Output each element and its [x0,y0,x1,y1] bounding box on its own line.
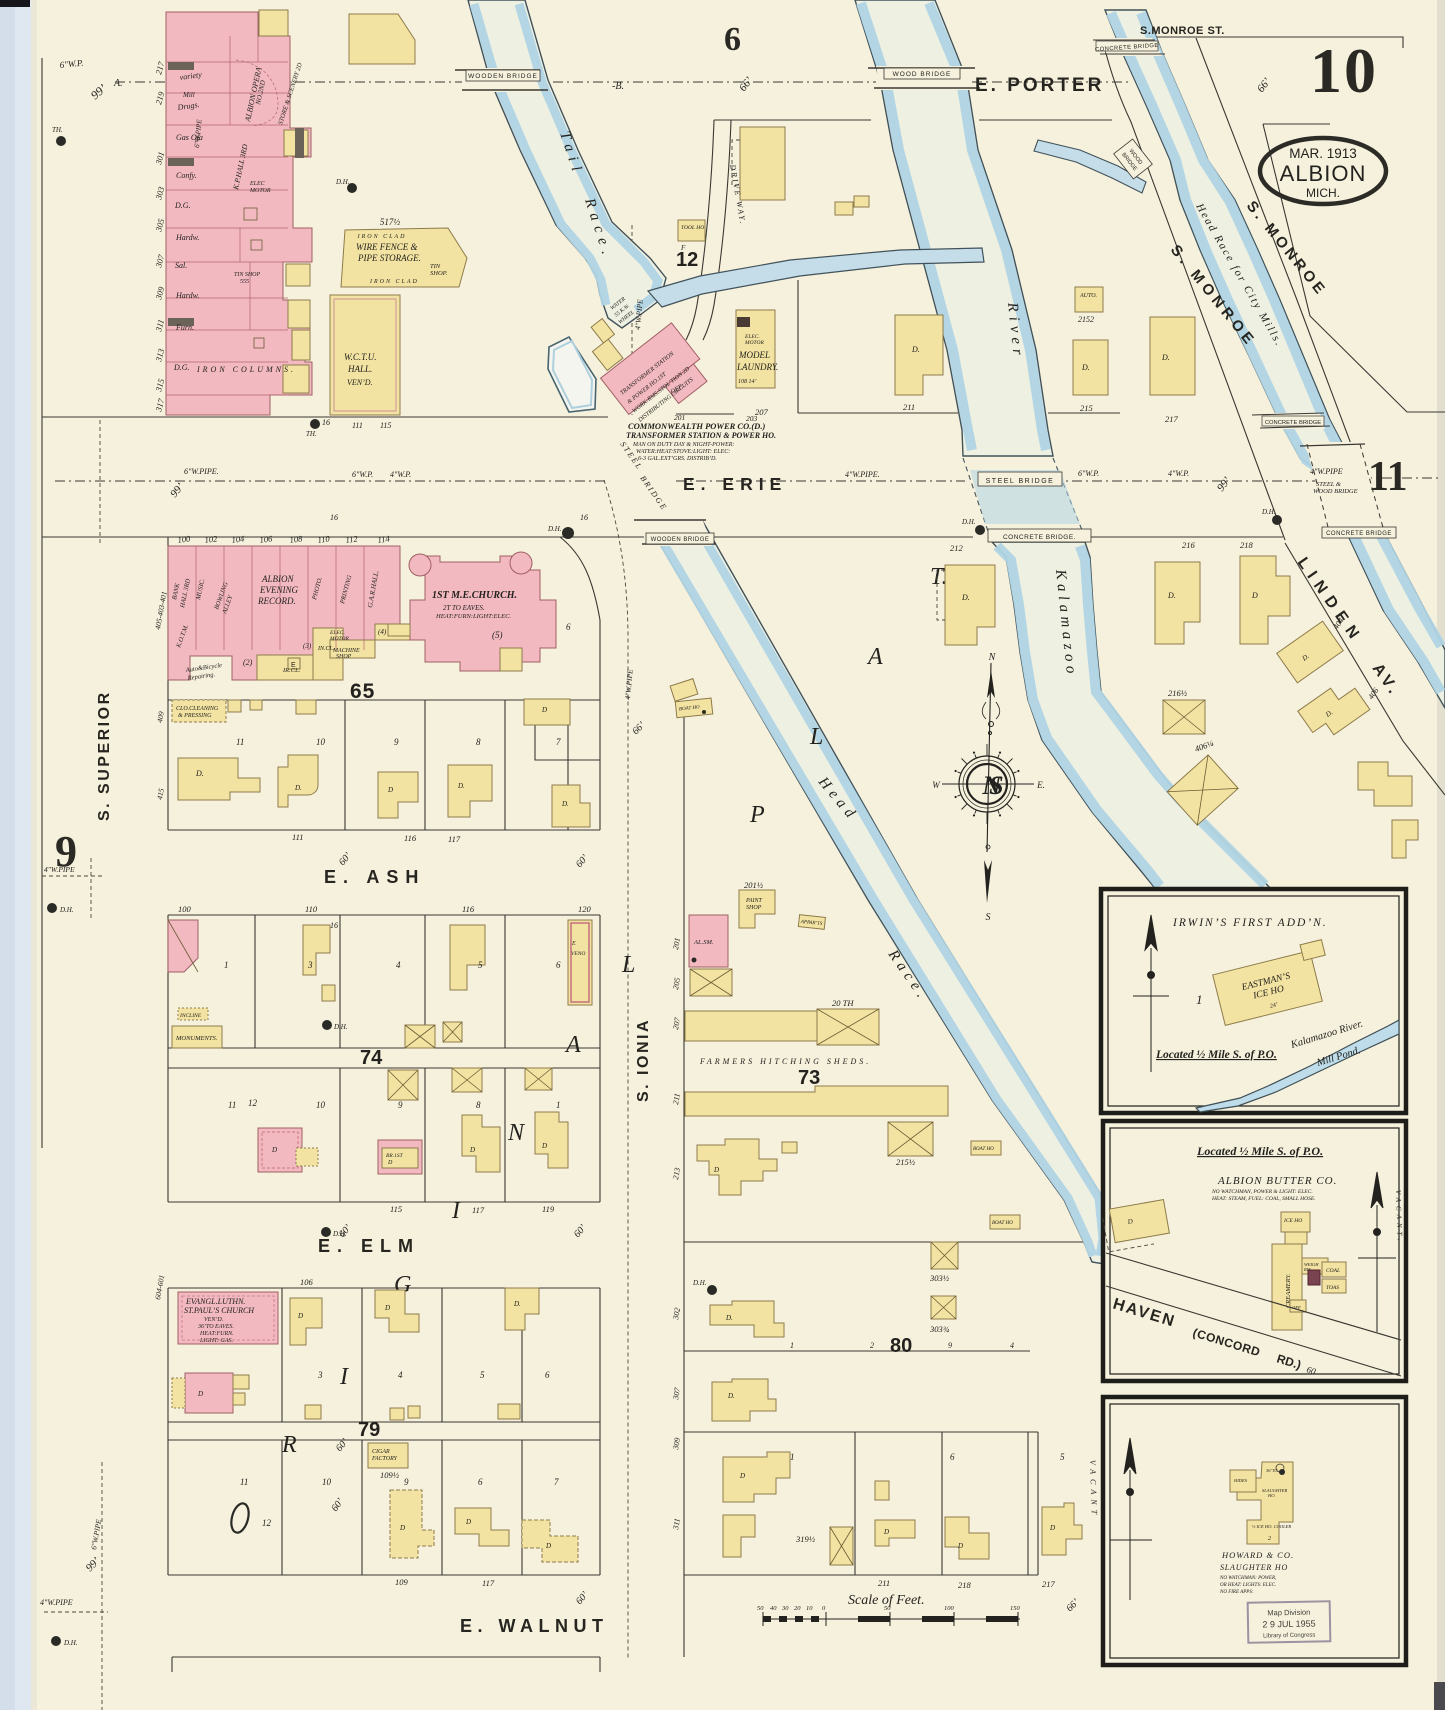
svg-text:D.H.: D.H. [692,1279,707,1287]
svg-text:11: 11 [1368,454,1408,500]
svg-text:106: 106 [300,1277,314,1287]
svg-text:R: R [281,1432,297,1458]
svg-text:5: 5 [478,960,483,970]
svg-text:Map Division: Map Division [1267,1608,1310,1618]
svg-text:3: 3 [307,960,313,970]
svg-text:207: 207 [755,407,769,417]
svg-text:D: D [713,1166,719,1174]
svg-text:D.: D. [1167,591,1176,600]
svg-text:50: 50 [757,1605,764,1612]
svg-text:4"W.PIPE: 4"W.PIPE [1310,467,1343,476]
svg-text:HIDES: HIDES [1233,1478,1248,1483]
svg-text:BOAT HO: BOAT HO [992,1221,1013,1226]
svg-text:5: 5 [480,1370,485,1380]
svg-text:NO FIRE APPS:: NO FIRE APPS: [1219,1590,1254,1595]
svg-text:(5): (5) [492,630,503,640]
svg-text:11: 11 [236,737,244,747]
svg-text:Located ½ Mile S. of P.O.: Located ½ Mile S. of P.O. [1196,1144,1323,1158]
svg-text:IRON CLAD: IRON CLAD [357,234,407,240]
svg-text:ELEC: ELEC [249,181,266,187]
svg-text:65: 65 [350,680,375,703]
svg-text:2152: 2152 [1078,315,1094,324]
svg-text:TOOL HO: TOOL HO [681,225,704,231]
svg-text:10: 10 [806,1605,813,1612]
svg-text:PAINT: PAINT [745,898,763,904]
svg-text:A.: A. [113,78,123,89]
svg-text:D.: D. [457,782,465,790]
svg-text:D.H.: D.H. [1261,508,1276,516]
svg-text:½ ICE HO. COOLER: ½ ICE HO. COOLER [1252,1524,1291,1529]
svg-text:Hardw.: Hardw. [175,291,199,300]
svg-text:D.H.: D.H. [335,178,350,186]
svg-text:D.H.: D.H. [332,1230,347,1238]
svg-text:8: 8 [476,1100,481,1110]
svg-text:MOTOR: MOTOR [329,636,349,642]
svg-text:-B.: -B. [612,81,624,92]
svg-text:6: 6 [556,960,561,970]
svg-text:S.MONROE ST.: S.MONROE ST. [1140,25,1225,37]
svg-text:VEN’D.: VEN’D. [204,1317,223,1323]
svg-text:Furn.: Furn. [175,323,194,332]
svg-text:115: 115 [390,1204,402,1214]
svg-text:1: 1 [224,960,229,970]
svg-text:E.: E. [1036,780,1045,790]
svg-text:12: 12 [248,1098,258,1108]
svg-text:HEAT: STEAM, FUEL: COAL, SMALL: HEAT: STEAM, FUEL: COAL, SMALL HOSE. [1211,1196,1316,1202]
svg-text:218: 218 [958,1580,972,1590]
svg-text:80: 80 [890,1335,912,1357]
svg-text:11: 11 [228,1100,236,1110]
svg-text:VEN’D.: VEN’D. [347,378,373,387]
svg-text:D.: D. [195,769,204,778]
svg-text:SLAUGHTER HO: SLAUGHTER HO [1220,1563,1288,1572]
svg-text:HEAT:FURN:LIGHT:ELEC.: HEAT:FURN:LIGHT:ELEC. [435,613,511,620]
svg-text:110: 110 [317,533,331,545]
svg-text:104: 104 [231,533,246,545]
svg-text:7: 7 [556,737,561,747]
svg-text:D: D [541,1142,547,1150]
svg-text:20: 20 [794,1605,801,1612]
svg-text:D: D [469,1146,475,1154]
svg-text:MODEL: MODEL [738,350,770,360]
svg-text:NO WATCHMAN, POWER & LIGHT: EL: NO WATCHMAN, POWER & LIGHT: ELEC. [1211,1189,1313,1195]
svg-text:217: 217 [1165,414,1179,424]
svg-text:117: 117 [472,1205,485,1215]
svg-text:D: D [883,1528,889,1536]
svg-text:517½: 517½ [380,217,401,227]
svg-text:COAL: COAL [1326,1268,1340,1274]
svg-text:6: 6 [566,622,571,632]
svg-text:MAR. 1913: MAR. 1913 [1289,146,1357,161]
svg-text:6: 6 [545,1370,550,1380]
svg-text:D.H.: D.H. [333,1023,348,1031]
svg-text:LIGHT: GAS.: LIGHT: GAS. [199,1338,233,1344]
svg-text:N: N [988,652,997,663]
svg-text:WOODEN BRIDGE: WOODEN BRIDGE [651,537,710,543]
svg-text:1ST M.E.CHURCH.: 1ST M.E.CHURCH. [432,590,517,601]
svg-text:4: 4 [1010,1341,1014,1350]
svg-text:9: 9 [404,1477,409,1487]
svg-text:CONCRETE BRIDGE: CONCRETE BRIDGE [1265,420,1321,426]
svg-text:L: L [621,952,635,978]
svg-text:OR HEAT: LIGHTS: ELEC.: OR HEAT: LIGHTS: ELEC. [1220,1583,1276,1588]
svg-text:E. WALNUT: E. WALNUT [460,1616,609,1636]
svg-text:ICE HO: ICE HO [1283,1218,1302,1224]
svg-text:D.: D. [561,800,569,808]
svg-text:MAN ON DUTY DAY & NIGHT-POWER:: MAN ON DUTY DAY & NIGHT-POWER: [632,442,734,448]
svg-text:12: 12 [262,1518,272,1528]
svg-text:ST.PAUL’S CHURCH: ST.PAUL’S CHURCH [184,1306,255,1315]
svg-text:Mill: Mill [182,91,195,99]
svg-text:211: 211 [878,1578,890,1588]
svg-text:D.: D. [294,784,302,792]
svg-text:VENO: VENO [571,951,585,957]
svg-text:4"W.P.: 4"W.P. [1168,469,1189,478]
svg-text:D: D [384,1304,390,1312]
svg-text:L: L [809,724,823,750]
svg-text:SHOP: SHOP [746,905,762,911]
svg-text:D: D [957,1542,963,1550]
svg-text:6"W.PIPE.: 6"W.PIPE. [184,467,219,476]
svg-text:S. SUPERIOR: S. SUPERIOR [96,690,113,821]
svg-text:216½: 216½ [1168,688,1188,698]
svg-text:HALL.: HALL. [347,364,372,374]
svg-text:6: 6 [950,1452,955,1462]
svg-text:D.H.: D.H. [63,1639,78,1647]
svg-text:SHOP: SHOP [336,654,352,660]
svg-text:D: D [387,786,393,794]
svg-text:1: 1 [790,1341,794,1350]
svg-text:114: 114 [377,533,391,545]
svg-text:D: D [1049,1524,1055,1532]
svg-text:12: 12 [676,249,698,271]
svg-text:2: 2 [870,1341,874,1350]
svg-text:Located ½ Mile S. of P.O.: Located ½ Mile S. of P.O. [1155,1049,1277,1061]
svg-text:9: 9 [948,1341,952,1350]
svg-text:(4): (4) [378,628,387,636]
svg-text:S. IONIA: S. IONIA [635,1018,652,1102]
svg-text:116: 116 [462,904,475,914]
svg-text:ALBION: ALBION [261,574,294,584]
svg-text:TIN: TIN [430,263,441,270]
svg-text:TH.: TH. [306,430,317,438]
svg-text:4"W.PIPE.: 4"W.PIPE. [845,470,880,479]
svg-text:215: 215 [1080,403,1093,413]
svg-text:AL.SM.: AL.SM. [693,939,714,946]
svg-text:HEAT:FURN.: HEAT:FURN. [199,1331,234,1337]
svg-text:16: 16 [330,513,338,522]
svg-text:111: 111 [352,421,363,430]
svg-text:217: 217 [1042,1579,1056,1589]
svg-text:211: 211 [903,402,915,412]
svg-text:109½: 109½ [380,1470,400,1480]
svg-text:IRON COLUMNS.: IRON COLUMNS. [196,365,296,374]
svg-text:100: 100 [944,1605,955,1612]
svg-text:(2): (2) [243,658,253,667]
svg-text:D.: D. [513,1300,521,1308]
svg-text:EVANGL.LUTHN.: EVANGL.LUTHN. [185,1297,245,1306]
svg-text:36’TO: 36’TO [1266,1468,1278,1473]
svg-text:4"W.PIPE: 4"W.PIPE [44,865,75,874]
svg-text:10: 10 [322,1477,332,1487]
svg-text:E. ELM: E. ELM [318,1236,420,1256]
svg-text:(3): (3) [303,642,312,650]
svg-text:& PRESSING: & PRESSING [178,713,212,719]
svg-text:Library of Congress: Library of Congress [1263,1633,1315,1640]
svg-text:TH.: TH. [52,126,63,134]
svg-text:NO WATCHMAN: POWER,: NO WATCHMAN: POWER, [1219,1576,1276,1581]
svg-text:D: D [297,1312,303,1320]
svg-text:74: 74 [360,1047,383,1069]
svg-text:A: A [866,644,883,670]
svg-text:2: 2 [1268,1536,1271,1542]
svg-text:D: D [197,1390,203,1398]
svg-text:D.: D. [911,345,920,354]
svg-text:WOODEN BRIDGE: WOODEN BRIDGE [468,73,538,80]
svg-text:6"W.P.: 6"W.P. [352,470,373,479]
svg-text:120: 120 [578,904,592,914]
svg-text:HOWARD & CO.: HOWARD & CO. [1221,1550,1294,1560]
svg-text:30: 30 [781,1605,789,1612]
svg-text:4"W.P.: 4"W.P. [390,470,411,479]
svg-text:D.H.: D.H. [59,906,74,914]
svg-text:36’TO EAVES.: 36’TO EAVES. [197,1324,234,1330]
svg-text:2T TO EAVES.: 2T TO EAVES. [443,604,485,612]
svg-text:555: 555 [240,279,249,285]
svg-text:D: D [541,706,547,714]
svg-text:D: D [387,1160,393,1166]
svg-text:FARMERS HITCHING SHEDS.: FARMERS HITCHING SHEDS. [699,1057,871,1066]
svg-text:119: 119 [542,1204,555,1214]
svg-text:D: D [1251,591,1258,600]
svg-text:216: 216 [1182,540,1196,550]
svg-text:BOAT HO: BOAT HO [973,1147,994,1152]
svg-text:D: D [739,1472,745,1480]
svg-text:6: 6 [724,21,741,58]
svg-text:STEEL &: STEEL & [1316,481,1342,488]
svg-text:319½: 319½ [795,1534,816,1544]
svg-text:E. PORTER: E. PORTER [975,75,1104,96]
svg-text:40: 40 [770,1605,777,1612]
svg-text:I: I [339,1364,349,1390]
svg-text:IRWIN’S FIRST ADD’N.: IRWIN’S FIRST ADD’N. [1172,917,1328,929]
svg-text:PIPE STORAGE.: PIPE STORAGE. [357,253,421,263]
svg-text:D.: D. [725,1314,733,1322]
svg-text:3: 3 [317,1370,323,1380]
svg-text:S: S [986,912,991,923]
svg-text:SHOP.: SHOP. [430,270,448,277]
svg-text:MICH.: MICH. [1306,186,1340,200]
svg-text:HO.: HO. [1267,1493,1276,1498]
svg-text:8: 8 [476,737,481,747]
svg-text:CIGAR: CIGAR [372,1449,390,1455]
svg-text:E. ASH: E. ASH [324,867,425,887]
svg-text:LAUNDRY.: LAUNDRY. [736,362,778,372]
svg-text:D.: D. [961,593,970,602]
svg-text:D.H.: D.H. [547,525,562,533]
svg-text:D: D [399,1524,405,1532]
svg-text:218: 218 [1240,540,1254,550]
svg-text:110: 110 [305,904,318,914]
svg-text:STEEL BRIDGE: STEEL BRIDGE [986,478,1055,485]
svg-text:16: 16 [580,513,588,522]
svg-text:215½: 215½ [896,1157,916,1167]
svg-text:MOTOR: MOTOR [744,340,764,346]
svg-text:D.G.: D.G. [174,201,191,210]
svg-text:108: 108 [289,533,304,545]
svg-text:9: 9 [398,1100,403,1110]
svg-text:79: 79 [358,1419,380,1441]
svg-text:E. ERIE: E. ERIE [683,474,787,494]
svg-text:6"W.P.: 6"W.P. [1078,469,1099,478]
svg-text:7: 7 [554,1477,559,1487]
svg-text:10: 10 [316,737,326,747]
svg-text:BR.1ST: BR.1ST [386,1153,404,1159]
svg-text:RECORD.: RECORD. [257,596,296,606]
svg-text:D.G.: D.G. [173,363,190,372]
svg-text:CLO.CLEANING: CLO.CLEANING [176,706,219,712]
svg-text:E: E [291,662,296,669]
svg-text:9: 9 [394,737,399,747]
svg-text:D: D [271,1146,277,1154]
svg-text:16: 16 [322,418,330,427]
svg-text:111: 111 [292,832,304,842]
svg-text:TRANSFORMER STATION & POWER HO: TRANSFORMER STATION & POWER HO. [626,431,776,440]
svg-text:E: E [571,941,576,947]
svg-text:4: 4 [398,1370,403,1380]
svg-text:Sal.: Sal. [175,261,187,270]
svg-text:TIN SHOP: TIN SHOP [234,272,261,278]
svg-text:117: 117 [482,1578,495,1588]
svg-text:303¾: 303¾ [929,1324,950,1334]
svg-text:D.: D. [727,1392,735,1400]
svg-text:50: 50 [884,1605,891,1612]
svg-text:AUTO.: AUTO. [1079,293,1097,299]
svg-text:D: D [465,1518,471,1526]
svg-text:116: 116 [404,833,417,843]
svg-text:100: 100 [178,904,192,914]
svg-text:FACTORY: FACTORY [371,1456,398,1462]
svg-text:201½: 201½ [744,880,764,890]
svg-text:6-3 GAL.EXT’GRS. DISTRIB’D.: 6-3 GAL.EXT’GRS. DISTRIB’D. [638,456,717,462]
svg-text:A: A [564,1032,581,1058]
svg-text:109: 109 [395,1577,409,1587]
svg-text:MOTOR: MOTOR [249,188,271,194]
svg-text:D: D [545,1542,551,1550]
svg-text:D.H.: D.H. [961,518,976,526]
svg-text:112: 112 [345,533,359,545]
svg-text:WATER:HEAT:STOVE:LIGHT: ELEC:: WATER:HEAT:STOVE:LIGHT: ELEC: [636,449,730,455]
svg-text:Confy.: Confy. [176,171,197,180]
svg-text:CONCRETE BRIDGE.: CONCRETE BRIDGE. [1003,534,1076,541]
svg-text:100: 100 [177,533,192,545]
svg-text:INCLINE: INCLINE [179,1013,202,1019]
svg-text:1: 1 [1196,992,1203,1007]
svg-text:4: 4 [396,960,401,970]
svg-text:108 14’: 108 14’ [738,378,757,385]
svg-text:4"W.PIPE: 4"W.PIPE [40,1598,73,1607]
svg-text:CONCRETE BRIDGE: CONCRETE BRIDGE [1326,531,1392,537]
svg-text:D.: D. [1081,363,1090,372]
svg-text:I: I [451,1198,461,1224]
svg-text:IRON CLAD: IRON CLAD [369,279,419,285]
svg-text:N: N [507,1120,526,1146]
svg-text:11: 11 [240,1477,248,1487]
svg-text:115: 115 [380,421,391,430]
svg-text:EVENING: EVENING [259,585,298,595]
svg-text:TOAS: TOAS [1326,1285,1339,1291]
svg-text:ALBION BUTTER CO.: ALBION BUTTER CO. [1217,1175,1337,1187]
svg-text:1: 1 [790,1452,795,1462]
svg-text:IN.CL.: IN.CL. [317,646,334,652]
svg-text:COMMONWEALTH POWER CO.(D.): COMMONWEALTH POWER CO.(D.) [628,421,765,431]
svg-text:150: 150 [1010,1605,1021,1612]
svg-text:16: 16 [330,921,338,930]
svg-text:117: 117 [448,834,461,844]
svg-text:WOOD BRIDGE: WOOD BRIDGE [893,71,952,78]
svg-text:P: P [749,802,765,828]
svg-text:10: 10 [316,1100,326,1110]
svg-text:106: 106 [259,533,274,545]
svg-text:ALBION: ALBION [1280,161,1367,186]
svg-text:WOOD BRIDGE: WOOD BRIDGE [1313,488,1358,495]
svg-text:D.: D. [1161,353,1170,362]
svg-text:6: 6 [478,1477,483,1487]
svg-text:10: 10 [1310,35,1378,106]
svg-text:MONUMENTS.: MONUMENTS. [175,1035,218,1042]
svg-text:212: 212 [950,543,964,553]
svg-text:5: 5 [1060,1452,1065,1462]
svg-text:2 9 JUL 1955: 2 9 JUL 1955 [1262,1619,1315,1630]
svg-text:Hardw.: Hardw. [175,233,199,242]
svg-text:20 TH: 20 TH [832,998,854,1008]
svg-text:1: 1 [556,1100,561,1110]
svg-text:WIRE FENCE &: WIRE FENCE & [356,242,418,252]
svg-text:W.C.T.U.: W.C.T.U. [344,352,377,362]
svg-text:102: 102 [204,533,219,545]
svg-text:303½: 303½ [929,1273,950,1283]
